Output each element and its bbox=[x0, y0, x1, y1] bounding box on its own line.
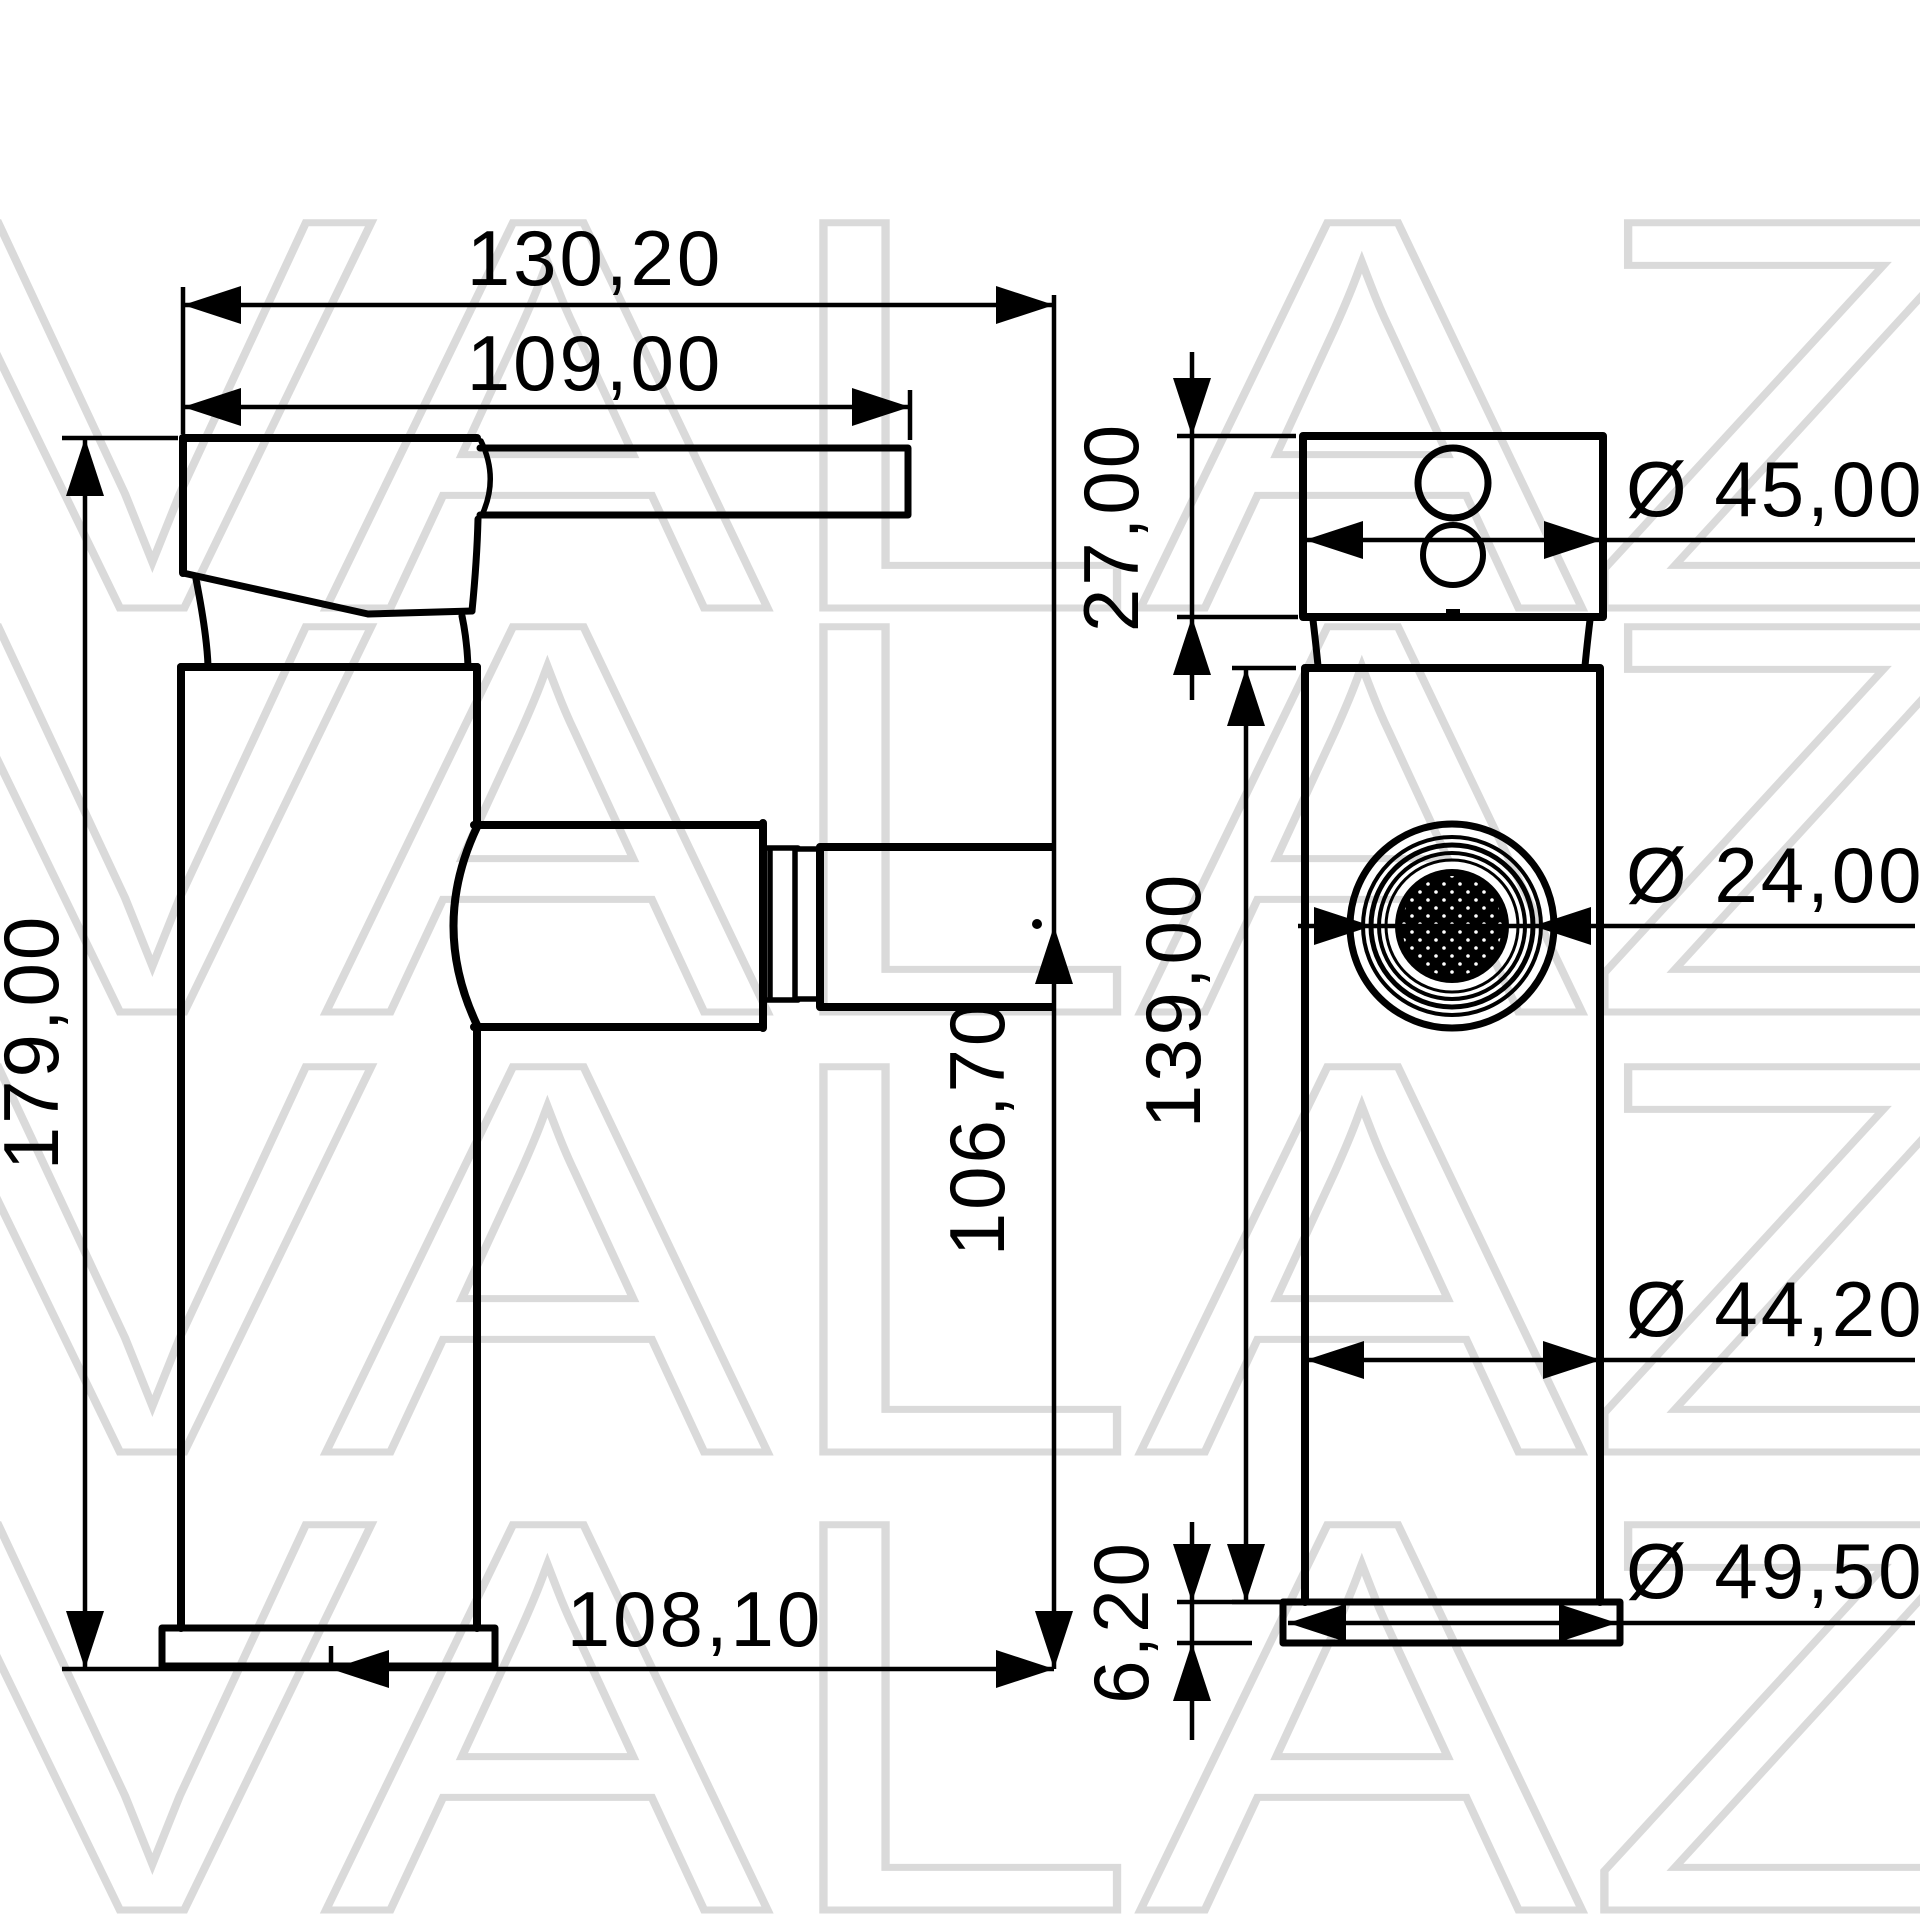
dim-label-base-height: 6,20 bbox=[1077, 1540, 1165, 1704]
faucet-dimension-drawing: VALAZ VALAZ VALAZ VALAZ bbox=[0, 0, 1920, 1920]
dim-label-base-diameter: Ø 49,50 bbox=[1626, 1527, 1920, 1615]
technical-drawing-page: VALAZ VALAZ VALAZ VALAZ bbox=[0, 0, 1920, 1920]
dim-label-body-height: 139,00 bbox=[1129, 872, 1217, 1129]
dim-label-body-diameter: Ø 44,20 bbox=[1626, 1265, 1920, 1353]
watermark-text: VALAZ bbox=[0, 1403, 1920, 1920]
dim-label-aerator-diameter: Ø 24,00 bbox=[1626, 831, 1920, 919]
dim-label-center-to-tip: 108,10 bbox=[567, 1575, 824, 1663]
front-handle-notch bbox=[1446, 609, 1460, 619]
dim-label-lever-length: 109,00 bbox=[467, 319, 724, 407]
center-mark-dot bbox=[1032, 919, 1042, 929]
dim-label-handle-diameter: Ø 45,00 bbox=[1626, 445, 1920, 533]
dim-label-overall-width: 130,20 bbox=[467, 214, 724, 302]
dim-label-spout-height: 106,70 bbox=[933, 1000, 1021, 1257]
dim-label-overall-height: 179,00 bbox=[0, 914, 75, 1171]
dim-label-handle-height: 27,00 bbox=[1067, 422, 1155, 632]
